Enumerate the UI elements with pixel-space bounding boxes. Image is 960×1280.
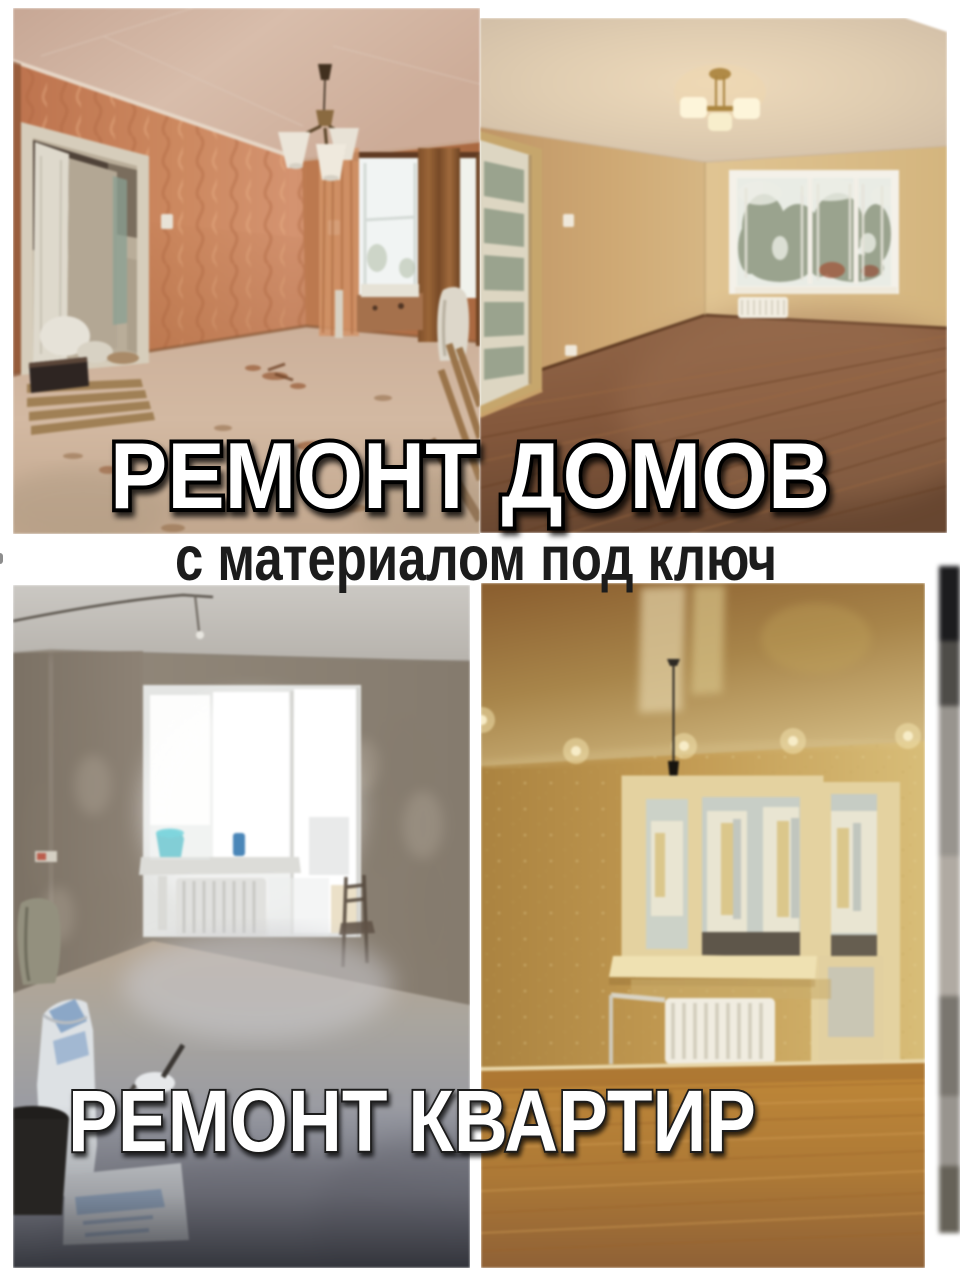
svg-text:РЕМОНТ ДОМОВ: РЕМОНТ ДОМОВ: [110, 423, 830, 528]
svg-text:РЕМОНТ КВАРТИР: РЕМОНТ КВАРТИР: [68, 1073, 756, 1170]
svg-text:с материалом под ключ: с материалом под ключ: [175, 524, 777, 594]
